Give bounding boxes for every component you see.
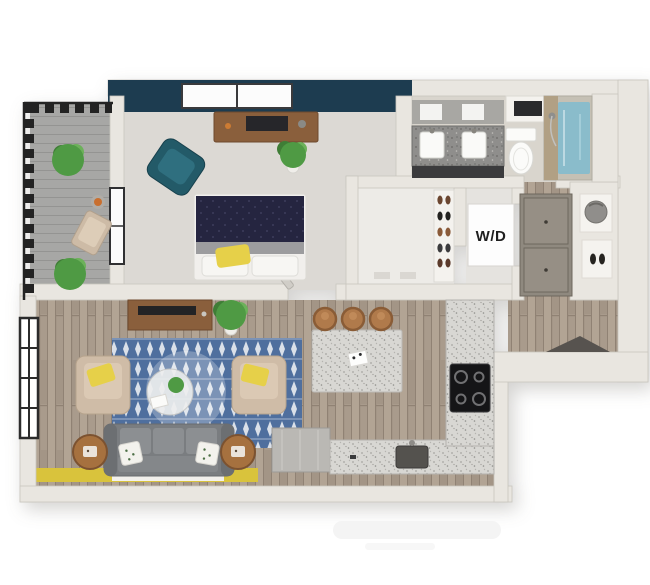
bed — [194, 194, 306, 280]
bed-blanket-fold — [196, 242, 304, 254]
floor-plan-image: W/D — [0, 0, 650, 585]
vanity-base — [412, 166, 504, 178]
wall-bedroom-bath — [396, 96, 412, 184]
watermark — [365, 543, 435, 550]
wall-entry-bottom — [494, 352, 648, 382]
washer-dryer-label: W/D — [476, 228, 507, 245]
wall-right-outer — [618, 80, 648, 382]
table-plant — [168, 377, 184, 393]
kitchen-counter-right — [446, 300, 494, 446]
storage-niche-shoes — [582, 240, 612, 278]
bedroom-desk — [214, 112, 318, 142]
balcony-door — [110, 188, 124, 264]
seat-cushion — [153, 428, 184, 454]
closet-drawer — [400, 272, 416, 279]
faucet — [472, 129, 477, 134]
cooktop — [450, 364, 490, 412]
hall-cabinets — [520, 194, 572, 296]
coffee-table — [147, 369, 193, 415]
armchair-left — [76, 356, 130, 414]
tv-console — [128, 300, 212, 330]
cabinet-knob — [544, 268, 548, 272]
desk-decor — [225, 123, 231, 129]
shoe — [599, 254, 605, 265]
sofa-base — [112, 476, 224, 481]
wall-closet-left — [346, 176, 358, 300]
mirror-reflection — [420, 104, 442, 120]
shoe — [590, 254, 596, 265]
niche-opening — [582, 240, 612, 278]
side-table-left — [73, 435, 107, 469]
tv — [138, 306, 196, 315]
bathroom-vanity — [412, 100, 504, 178]
plant-leaves — [216, 300, 246, 330]
bar-stools — [314, 308, 392, 330]
balcony-plant-bottom — [54, 258, 86, 290]
shoe-shelf — [434, 190, 454, 282]
throw-pillow — [118, 441, 143, 466]
monitor — [246, 116, 288, 131]
throw-pillow — [195, 441, 219, 465]
wall-bath-right — [592, 94, 618, 182]
wall-bottom-outer — [20, 486, 512, 502]
living-room-window — [20, 318, 38, 438]
storage-niche-bag — [580, 194, 612, 232]
kitchen-island — [312, 330, 402, 392]
counter-item — [350, 455, 356, 459]
mirror-reflection — [462, 104, 484, 120]
stool-highlight — [349, 312, 357, 320]
watermark — [333, 521, 501, 539]
closet-drawer — [374, 272, 390, 279]
balcony-bowl — [94, 198, 102, 206]
bed-pillow — [252, 256, 298, 276]
tub-water — [558, 102, 590, 174]
stool-highlight — [377, 312, 385, 320]
refrigerator — [272, 428, 330, 472]
wall-closet-right — [454, 188, 466, 246]
table-decor — [231, 446, 245, 457]
side-table-right — [221, 435, 255, 469]
bathroom-shelf — [506, 96, 550, 122]
wall-closet-bottom — [346, 284, 524, 300]
desk-lamp — [298, 120, 306, 128]
balcony-plant-top — [52, 144, 84, 176]
decor-dot — [235, 450, 237, 452]
shelf-tray — [514, 101, 542, 116]
shower — [544, 96, 592, 180]
toilet-tank — [506, 128, 536, 141]
bed-duvet-tufting — [196, 196, 304, 242]
decor-dot — [87, 450, 89, 452]
bedroom-window — [182, 84, 292, 108]
washer-dryer: W/D — [468, 204, 514, 266]
sofa — [104, 424, 234, 481]
kitchen-sink — [396, 446, 428, 468]
entry-floor — [508, 296, 618, 352]
sink-right — [462, 132, 486, 158]
shower-tile-wall — [544, 96, 558, 180]
sink-left — [420, 132, 444, 158]
console-decor — [202, 312, 207, 317]
plant-leaves — [280, 142, 306, 168]
floor-plan-3d: W/D — [0, 0, 650, 585]
stool-highlight — [321, 312, 329, 320]
toilet-bowl — [509, 142, 533, 174]
fridge-top — [272, 428, 330, 472]
sink-faucet — [409, 440, 415, 446]
cabinet-knob — [544, 220, 548, 224]
faucet — [430, 129, 435, 134]
table-decor — [83, 446, 97, 457]
armchair-right — [232, 356, 286, 414]
